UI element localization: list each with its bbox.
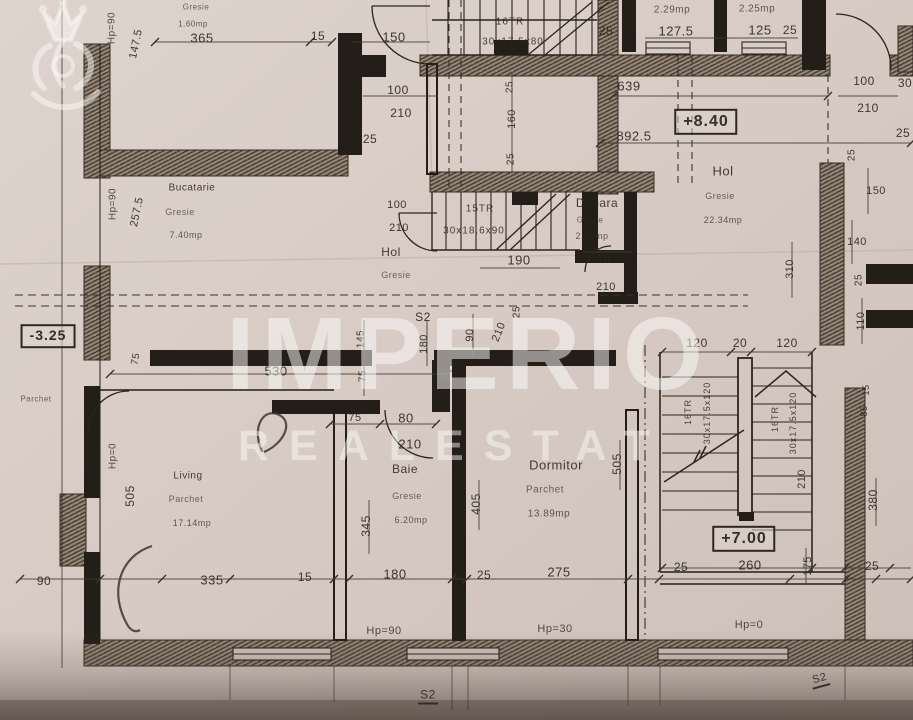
section-label: S2 [418, 688, 438, 705]
room-finish-label: Gresie [705, 191, 735, 201]
room-area-label: 22.34mp [704, 215, 743, 225]
stair-label: 16TR [770, 406, 780, 432]
dim-label: 25 [505, 81, 516, 93]
dim-label: 210 [398, 437, 421, 452]
stair-label: 16TR [683, 399, 693, 425]
dim-label: 505 [123, 485, 137, 507]
dim-label: 210 [857, 101, 879, 115]
dim-label: 405 [469, 493, 483, 515]
dim-label: 25 [363, 132, 377, 146]
dim-label: 75 [348, 412, 361, 424]
dim-label: 100 [853, 74, 875, 88]
parapet-height-label: Hp=90 [108, 188, 119, 220]
dim-label: 100 [387, 199, 407, 211]
dim-label: 210 [390, 106, 412, 120]
section-label: S2 [809, 670, 831, 689]
dim-label: 150 [382, 30, 405, 45]
room-area-label: 2.29mp [654, 5, 690, 16]
section-label: S2 [415, 310, 431, 324]
parapet-height-label: Hp=90 [107, 12, 118, 44]
dim-label: 25 [506, 153, 517, 165]
room-name-label: Debara [576, 196, 618, 210]
room-area-label: 7.40mp [169, 230, 202, 240]
room-area-label: 2.10mp [575, 231, 608, 241]
room-area-label: 2.25mp [739, 4, 775, 15]
stair-label: 30x17.5x120 [788, 392, 798, 455]
dim-label: 30 [898, 76, 912, 90]
dim-label: 15 [861, 384, 871, 395]
room-finish-label: Parchet [169, 494, 204, 504]
room-area-label: 13.89mp [528, 509, 570, 520]
room-area-label: 6.20mp [394, 515, 427, 525]
stair-label: 30x17.5x120 [702, 382, 712, 445]
dim-label: 25 [896, 126, 910, 140]
stair-label: 30x17.5x80 [482, 37, 544, 48]
dim-label: 110 [855, 311, 867, 330]
dim-label: 15 [298, 570, 312, 584]
dim-label: 210 [389, 222, 409, 234]
dim-label: 25 [847, 149, 858, 161]
dim-label: 260 [738, 558, 761, 573]
dim-label: 90 [37, 574, 51, 588]
room-name-label: Hol [712, 164, 733, 179]
dim-label: 25 [674, 560, 688, 574]
dim-label: 530 [264, 364, 287, 379]
room-name-label: Living [173, 471, 202, 482]
dim-label: 70 [597, 253, 610, 265]
parapet-height-label: Hp=0 [108, 443, 119, 469]
dim-label: 380 [866, 489, 880, 511]
dim-label: 120 [686, 336, 708, 350]
dim-label: 25 [783, 23, 797, 37]
dim-label: 175 [802, 556, 814, 576]
dim-label: 75 [358, 370, 369, 382]
room-finish-label: Parchet [526, 485, 564, 496]
dim-label: 127.5 [658, 24, 693, 39]
dim-label: 335 [200, 573, 223, 588]
dim-label: 150 [866, 185, 886, 197]
room-finish-label: Gresie [577, 216, 604, 225]
room-name-label: Hol [381, 245, 401, 259]
parapet-height-label: Hp=0 [735, 619, 764, 631]
dim-label: 25 [512, 306, 523, 318]
dim-label: 90 [464, 328, 476, 341]
dim-label: 160 [506, 109, 518, 129]
room-finish-label: Gresie [183, 3, 210, 12]
dim-label: 210 [796, 469, 808, 489]
room-name-label: Baie [392, 462, 418, 476]
dim-label: 345 [359, 515, 373, 537]
room-finish-label: Gresie [392, 491, 422, 501]
room-finish-label: Gresie [165, 207, 195, 217]
parapet-height-label: Hp=30 [537, 623, 572, 635]
dim-label: 210 [490, 321, 509, 344]
dim-label: 310 [784, 259, 796, 279]
parapet-height-label: Hp=90 [366, 625, 401, 637]
dim-label: 20 [733, 336, 747, 350]
stair-label: 16TR [496, 17, 524, 28]
dim-label: 25 [599, 24, 613, 38]
dim-label: 892.5 [616, 129, 651, 144]
dim-label: 190 [507, 253, 530, 268]
dim-label: 365 [190, 31, 213, 46]
dim-label: 145 [356, 330, 367, 348]
room-area-label: 17.14mp [173, 518, 212, 528]
room-area-label: 1.60mp [178, 20, 208, 29]
dim-label: 257.5 [128, 196, 146, 228]
floor-plan-photo: Hp=90147.5Gresie1.60mp3651515016TR30x17.… [0, 0, 913, 720]
elevation-marker: +8.40 [674, 109, 737, 135]
room-finish-label: Gresie [381, 270, 411, 280]
dim-label: 210 [596, 281, 616, 293]
room-name-label: Dormitor [529, 458, 583, 473]
room-name-label: Bucatarie [169, 183, 216, 194]
dim-label: 140 [847, 236, 867, 248]
dim-label: 180 [418, 334, 430, 354]
dim-label: 125 [748, 23, 771, 38]
dim-label: 275 [547, 565, 570, 580]
elevation-marker: -3.25 [21, 324, 76, 348]
dim-label: 120 [776, 336, 798, 350]
dim-label: 25 [854, 274, 865, 286]
dim-label: 15 [311, 29, 325, 43]
dim-label: 75 [130, 352, 143, 366]
elevation-marker: +7.00 [712, 526, 775, 552]
dim-label: 85 [859, 405, 869, 416]
dim-label: 100 [387, 83, 409, 97]
stair-label: 30x18.6x90 [443, 226, 505, 237]
dim-label: 147.5 [127, 28, 145, 60]
stair-label: 15TR [466, 204, 494, 215]
dim-label: 25 [865, 559, 879, 573]
plan-labels-layer: Hp=90147.5Gresie1.60mp3651515016TR30x17.… [0, 0, 913, 720]
room-finish-label: Parchet [20, 395, 51, 404]
dim-label: 25 [477, 568, 491, 582]
dim-label: 639 [617, 79, 640, 94]
dim-label: 80 [398, 411, 413, 426]
dim-label: 180 [383, 567, 406, 582]
dim-label: 505 [610, 453, 624, 475]
